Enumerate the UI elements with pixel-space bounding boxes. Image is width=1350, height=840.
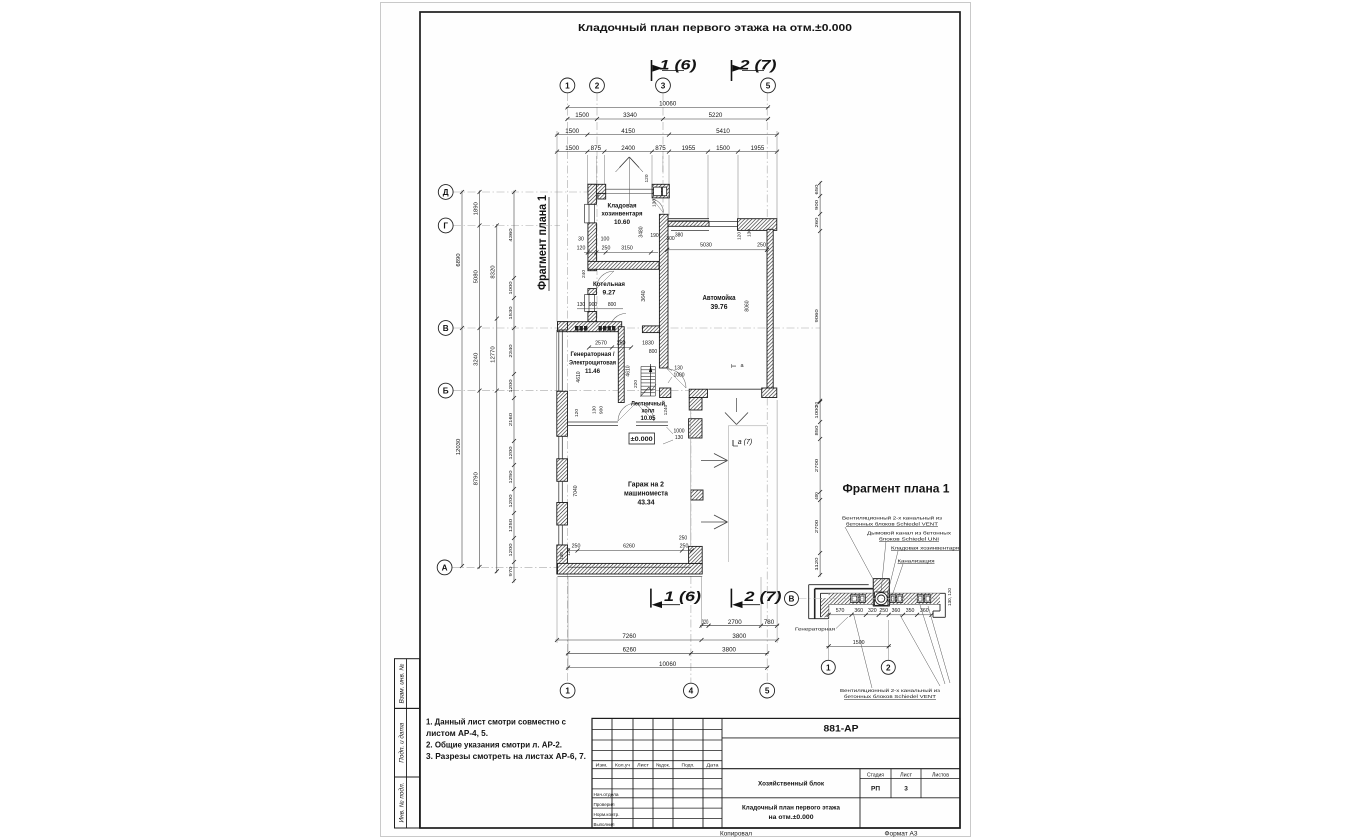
svg-text:Листов: Листов: [932, 772, 949, 778]
svg-text:3800: 3800: [732, 634, 746, 640]
svg-text:Электрощитовая: Электрощитовая: [569, 360, 616, 367]
svg-text:5220: 5220: [709, 113, 723, 119]
svg-text:1890: 1890: [473, 202, 479, 215]
svg-text:300: 300: [666, 236, 675, 242]
svg-text:Кладочный план первого этажа н: Кладочный план первого этажа на отм.±0.0…: [578, 22, 852, 34]
svg-text:Генераторная: Генераторная: [795, 627, 836, 633]
svg-text:800: 800: [649, 349, 658, 355]
svg-text:6260: 6260: [623, 544, 635, 550]
svg-text:9060: 9060: [814, 309, 819, 323]
svg-text:машиноместа: машиноместа: [624, 491, 668, 498]
svg-text:900: 900: [599, 406, 605, 414]
svg-text:бетонных блоков Schiedel VENT: бетонных блоков Schiedel VENT: [844, 694, 936, 700]
svg-text:1830: 1830: [642, 341, 654, 347]
svg-text:1: 1: [565, 81, 570, 90]
svg-text:Д: Д: [443, 188, 449, 197]
svg-text:800: 800: [608, 302, 617, 308]
svg-text:2 (7): 2 (7): [743, 589, 782, 604]
svg-text:блоков Schiedel UNI: блоков Schiedel UNI: [879, 537, 939, 543]
svg-text:10060: 10060: [659, 662, 677, 668]
svg-text:Кладовая: Кладовая: [608, 203, 637, 210]
svg-text:3800: 3800: [722, 648, 736, 654]
svg-text:4: 4: [689, 687, 694, 696]
svg-text:130: 130: [747, 229, 753, 237]
svg-text:1200: 1200: [508, 543, 513, 557]
svg-text:Кладовая хозинвентаря: Кладовая хозинвентаря: [891, 546, 960, 552]
svg-text:1120: 1120: [814, 557, 819, 571]
svg-text:3: 3: [904, 786, 908, 793]
svg-text:4360: 4360: [508, 228, 513, 242]
svg-text:130: 130: [559, 552, 564, 560]
svg-text:250: 250: [879, 608, 888, 614]
svg-text:250: 250: [602, 246, 611, 252]
svg-text:1. Данный лист смотри совместн: 1. Данный лист смотри совместно с: [426, 718, 566, 727]
svg-text:120: 120: [566, 548, 571, 556]
svg-text:120: 120: [577, 246, 586, 252]
svg-text:2700: 2700: [814, 458, 819, 472]
svg-text:2700: 2700: [728, 620, 742, 626]
svg-text:190: 190: [650, 233, 659, 239]
svg-text:970: 970: [508, 566, 513, 577]
svg-text:Канализация: Канализация: [898, 559, 936, 565]
svg-text:250: 250: [617, 341, 626, 347]
svg-text:1500: 1500: [853, 640, 865, 646]
svg-text:5: 5: [766, 81, 771, 90]
svg-text:220: 220: [633, 380, 639, 388]
svg-text:Г: Г: [443, 221, 448, 230]
svg-text:1000: 1000: [673, 429, 684, 435]
svg-text:хозинвентаря: хозинвентаря: [602, 211, 643, 218]
svg-text:350: 350: [906, 608, 915, 614]
svg-text:130: 130: [592, 406, 598, 414]
svg-text:1500: 1500: [565, 129, 579, 135]
svg-text:12770: 12770: [491, 346, 497, 363]
svg-text:43.34: 43.34: [638, 500, 655, 507]
svg-text:2160: 2160: [508, 412, 513, 426]
svg-text:1200: 1200: [508, 494, 513, 508]
svg-text:А: А: [442, 563, 448, 572]
svg-text:10060: 10060: [659, 102, 677, 108]
svg-text:Генераторная /: Генераторная /: [571, 351, 615, 358]
svg-text:39.76: 39.76: [711, 302, 728, 311]
svg-text:В: В: [789, 594, 795, 603]
svg-text:3150: 3150: [621, 246, 633, 252]
svg-text:Вентиляционный 2-х канальный и: Вентиляционный 2-х канальный из: [840, 687, 941, 694]
svg-text:130: 130: [675, 435, 684, 441]
svg-text:РП: РП: [871, 786, 880, 793]
svg-text:10.05: 10.05: [641, 415, 656, 422]
svg-text:100: 100: [601, 237, 610, 243]
svg-text:1000: 1000: [508, 281, 513, 295]
svg-text:5030: 5030: [700, 243, 712, 249]
svg-text:360: 360: [892, 608, 901, 614]
svg-text:2: 2: [595, 81, 600, 90]
svg-text:листом АР-4, 5.: листом АР-4, 5.: [426, 729, 488, 738]
svg-text:Хозяйственный блок: Хозяйственный блок: [758, 780, 825, 788]
svg-text:№док.: №док.: [656, 762, 670, 767]
svg-text:Б: Б: [443, 387, 449, 396]
svg-text:120: 120: [644, 174, 650, 182]
svg-text:850: 850: [814, 425, 819, 435]
svg-text:11.46: 11.46: [585, 368, 600, 375]
svg-text:3640: 3640: [641, 290, 647, 301]
svg-text:Проверил: Проверил: [594, 802, 615, 807]
svg-text:1250: 1250: [508, 518, 513, 532]
svg-text:Лестничный: Лестничный: [631, 400, 665, 408]
svg-text:30: 30: [578, 237, 584, 243]
svg-text:240: 240: [581, 270, 587, 278]
svg-text:Взам. инв. №: Взам. инв. №: [399, 663, 406, 704]
svg-text:холл: холл: [642, 408, 655, 415]
svg-text:7260: 7260: [622, 634, 636, 640]
svg-text:4150: 4150: [621, 129, 635, 135]
svg-text:Формат А3: Формат А3: [885, 830, 919, 837]
svg-text:Подп. и дата: Подп. и дата: [400, 722, 406, 763]
svg-text:1 (6): 1 (6): [660, 58, 698, 73]
svg-text:2570: 2570: [595, 341, 607, 347]
svg-text:1200: 1200: [508, 379, 513, 393]
svg-text:1: 1: [826, 663, 831, 672]
svg-text:Дымовой канал из бетонных: Дымовой канал из бетонных: [867, 530, 952, 537]
svg-text:В: В: [443, 324, 449, 333]
svg-text:Выполнил: Выполнил: [594, 822, 615, 827]
svg-text:Гараж на 2: Гараж на 2: [628, 482, 664, 489]
svg-text:8790: 8790: [473, 472, 479, 485]
svg-text:1200: 1200: [508, 446, 513, 460]
svg-text:Стадия: Стадия: [867, 772, 884, 778]
svg-text:Фрагмент плана 1: Фрагмент плана 1: [843, 484, 951, 496]
svg-text:а (7): а (7): [738, 439, 752, 446]
svg-text:2400: 2400: [621, 146, 635, 152]
svg-text:260: 260: [814, 217, 819, 227]
svg-text:881-АР: 881-АР: [824, 724, 860, 735]
svg-text:1 (6): 1 (6): [664, 589, 702, 604]
svg-text:3. Разрезы смотреть на листах: 3. Разрезы смотреть на листах АР-6, 7.: [426, 752, 586, 761]
svg-text:2: 2: [886, 663, 891, 672]
svg-text:20: 20: [814, 402, 819, 408]
svg-text:130: 130: [577, 302, 586, 308]
svg-text:900: 900: [589, 302, 598, 308]
svg-text:900: 900: [814, 199, 819, 209]
svg-text:570: 570: [836, 608, 845, 614]
svg-text:250: 250: [757, 243, 766, 249]
svg-text:3: 3: [661, 81, 666, 90]
svg-text:4610: 4610: [576, 371, 582, 382]
svg-text:9.27: 9.27: [603, 290, 616, 297]
svg-text:Нач.отдела: Нач.отдела: [594, 792, 619, 797]
svg-text:5080: 5080: [473, 270, 479, 283]
svg-text:120: 120: [737, 232, 743, 240]
svg-text:1530: 1530: [508, 306, 513, 320]
svg-text:8060: 8060: [745, 300, 751, 311]
svg-text:8320: 8320: [491, 265, 497, 278]
svg-text:Фрагмент плана 1: Фрагмент плана 1: [537, 194, 549, 290]
svg-text:12030: 12030: [456, 439, 462, 456]
svg-text:Копировал: Копировал: [720, 830, 752, 837]
svg-text:650: 650: [814, 184, 819, 194]
svg-text:2700: 2700: [814, 519, 819, 533]
svg-text:5410: 5410: [716, 129, 730, 135]
svg-text:7040: 7040: [573, 485, 579, 496]
svg-text:Изм.: Изм.: [596, 762, 608, 767]
svg-text:Т: Т: [731, 364, 738, 368]
svg-text:Подп.: Подп.: [682, 762, 695, 767]
svg-text:400: 400: [814, 492, 819, 500]
svg-text:380: 380: [675, 233, 684, 239]
svg-text:Дата: Дата: [707, 762, 720, 767]
svg-text:130: 130: [652, 199, 658, 207]
svg-text:2. Общие указания смотри л. АР: 2. Общие указания смотри л. АР-2.: [426, 740, 562, 750]
svg-text:Котельная: Котельная: [593, 281, 625, 288]
svg-text:1000: 1000: [673, 373, 684, 379]
svg-text:1500: 1500: [716, 146, 730, 152]
svg-text:780: 780: [764, 620, 775, 626]
svg-text:360: 360: [854, 608, 863, 614]
svg-text:на отм.±0.000: на отм.±0.000: [769, 814, 815, 821]
svg-text:3240: 3240: [473, 353, 479, 366]
svg-text:120: 120: [574, 409, 580, 417]
svg-text:2340: 2340: [508, 344, 513, 358]
svg-text:130, 120: 130, 120: [947, 588, 952, 606]
svg-text:Кол.уч: Кол.уч: [615, 762, 631, 767]
svg-text:4610: 4610: [626, 365, 632, 376]
svg-text:320: 320: [868, 608, 877, 614]
svg-text:Вентиляционный 2-х канальный и: Вентиляционный 2-х канальный из: [842, 515, 943, 522]
svg-text:Лист: Лист: [900, 772, 913, 778]
svg-text:1250: 1250: [508, 470, 513, 484]
svg-text:Норм.контр.: Норм.контр.: [594, 812, 620, 817]
svg-text:1955: 1955: [682, 146, 696, 152]
svg-text:6890: 6890: [456, 253, 462, 266]
svg-text:Автомойка: Автомойка: [703, 293, 737, 302]
svg-text:1240: 1240: [663, 404, 669, 415]
svg-text:250: 250: [679, 536, 688, 542]
svg-text:320: 320: [702, 620, 709, 626]
svg-text:130: 130: [674, 366, 683, 372]
svg-text:3340: 3340: [623, 113, 637, 119]
svg-text:Инв. № подл.: Инв. № подл.: [399, 783, 406, 823]
svg-text:1: 1: [565, 687, 570, 696]
svg-text:10.60: 10.60: [614, 219, 630, 226]
svg-text:1500: 1500: [565, 146, 579, 152]
svg-text:875: 875: [655, 146, 666, 152]
svg-text:бетонных блоков Schiedel VENT: бетонных блоков Schiedel VENT: [846, 522, 938, 528]
svg-text:2 (7): 2 (7): [738, 58, 777, 73]
svg-text:1500: 1500: [575, 113, 589, 119]
svg-text:±0.000: ±0.000: [631, 436, 654, 443]
svg-text:Лист: Лист: [637, 762, 650, 767]
svg-text:6260: 6260: [623, 648, 637, 654]
svg-text:Кладочный план первого этажа: Кладочный план первого этажа: [742, 804, 840, 812]
svg-text:3480: 3480: [639, 226, 645, 237]
svg-text:5: 5: [765, 687, 770, 696]
svg-text:875: 875: [591, 146, 602, 152]
svg-text:1955: 1955: [751, 146, 765, 152]
